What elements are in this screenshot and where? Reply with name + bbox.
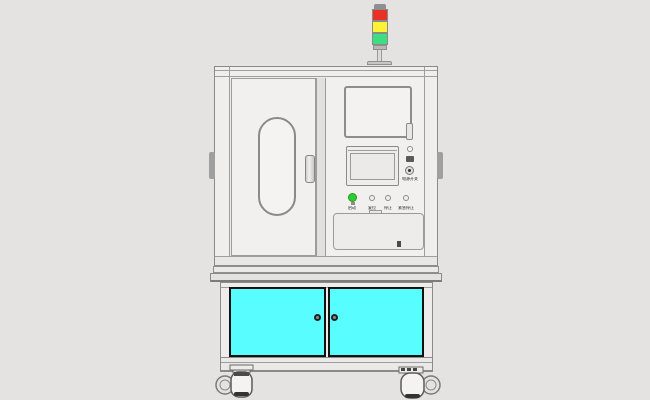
machine-illustration: 电源开关 启动 复位 停止 紧急停止 <box>0 0 650 400</box>
caster-left <box>212 363 258 399</box>
center-divider-post <box>316 78 326 256</box>
reset-button <box>369 195 375 201</box>
upper-cabinet-top-inner-line <box>215 76 437 77</box>
start-button <box>348 193 357 202</box>
recessed-panel <box>333 213 424 250</box>
door-knob-right-pin <box>333 316 336 319</box>
estop-button <box>403 195 409 201</box>
viewing-window-latch <box>406 123 413 140</box>
right-side-tab <box>437 152 443 179</box>
table-band-beam <box>210 273 442 282</box>
tower-light-yellow <box>372 21 388 33</box>
left-side-tab <box>209 152 215 179</box>
table-band-upper <box>213 266 439 273</box>
tower-light-red <box>372 9 388 21</box>
indicator-lamp <box>407 146 413 152</box>
upper-cabinet-left-post-line <box>229 67 230 263</box>
toggle-switch <box>406 156 414 162</box>
start-button-base <box>351 202 355 205</box>
recessed-panel-latch <box>397 241 401 247</box>
lower-door-right <box>328 287 424 357</box>
caster-left-plate <box>230 365 253 370</box>
lower-door-left <box>229 287 326 357</box>
tower-foot <box>367 61 392 65</box>
viewing-window <box>344 86 412 138</box>
upper-cabinet-bottom-rail <box>215 256 437 265</box>
estop-button-label: 紧急停止 <box>392 206 420 210</box>
key-selector-slot <box>408 169 411 172</box>
capsule-window <box>258 117 296 216</box>
touchscreen-screen <box>350 153 395 180</box>
stop-button <box>385 195 391 201</box>
caster-right <box>392 364 442 400</box>
tower-light-green <box>372 33 388 45</box>
upper-cabinet-right-post-line <box>424 67 425 263</box>
signal-tower <box>362 2 398 68</box>
left-door-handle <box>305 155 315 183</box>
upper-cabinet-top-rail-line <box>215 70 437 71</box>
selector-label: 电源开关 <box>396 177 424 181</box>
start-button-label: 启动 <box>341 206 363 210</box>
touchscreen-top-line <box>348 150 397 151</box>
door-knob-left-pin <box>316 316 319 319</box>
